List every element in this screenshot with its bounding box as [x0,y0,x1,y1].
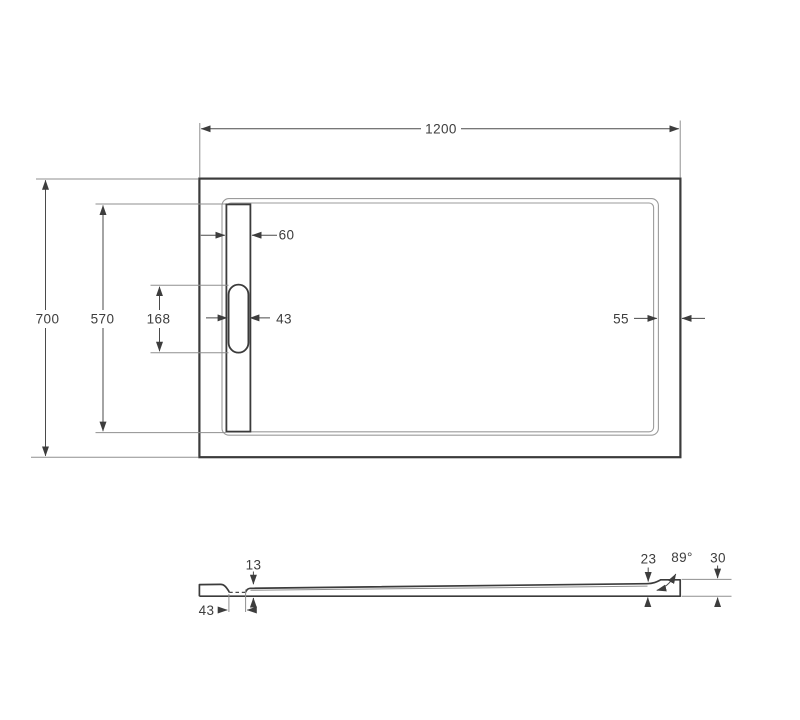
drain-cover [229,285,249,353]
dimension-label: 1200 [425,121,457,136]
dim-edge-height: 23 [641,552,657,607]
drawing-canvas: 1200 700 570 168 [0,0,800,720]
dimension-label: 13 [246,558,262,573]
dim-wall-angle: 89° [657,550,693,590]
side-view: 13 43 23 89° 30 [199,550,732,618]
dimension-label: 700 [36,312,60,327]
dimension-label: 23 [641,552,657,567]
dim-overall-width: 1200 [200,121,680,178]
dim-drain-channel-length: 43 [199,590,257,619]
angle-arc [657,574,676,590]
shower-tray-technical-drawing: 1200 700 570 168 [0,0,800,720]
dimension-label: 570 [91,312,115,327]
dimension-label: 43 [276,312,292,327]
dimension-label: 60 [279,228,295,243]
tray-outer-edge [199,179,680,458]
dimension-label: 55 [613,312,629,327]
dimension-label: 30 [710,551,726,566]
dimension-label: 89° [671,550,693,565]
top-view: 1200 700 570 168 [31,121,705,458]
tray-profile-left [199,584,229,596]
dimension-label: 168 [147,312,171,327]
dimension-label: 43 [199,603,215,618]
dim-tray-thickness: 13 [246,558,262,607]
dim-overall-depth: 700 [31,179,198,457]
